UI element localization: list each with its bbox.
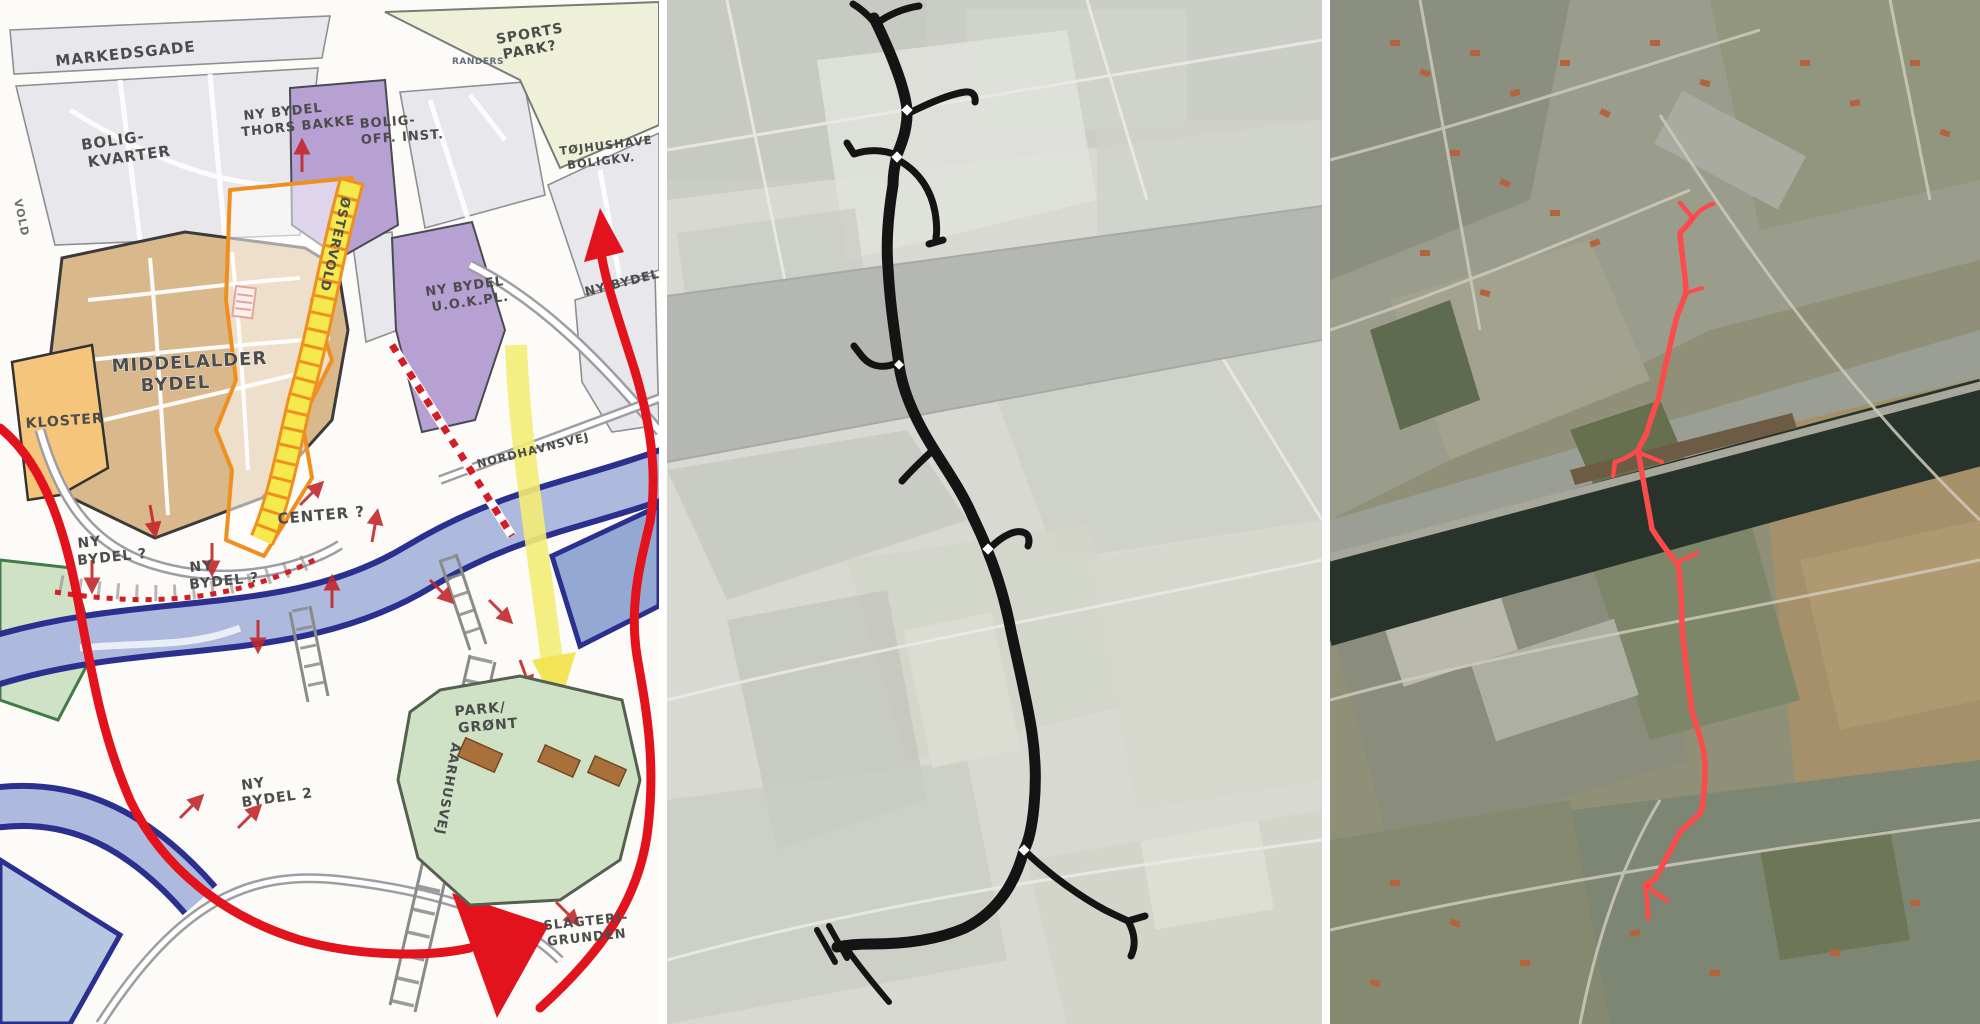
zone-park-gront (398, 676, 640, 905)
color-aerial-route-panel (1330, 0, 1980, 1024)
label-randers: RANDERS (452, 57, 504, 67)
bw-aerial-alignment-panel (667, 0, 1322, 1024)
sketch-map-panel: MARKEDSGADE BOLIG- KVARTER NY BYDEL THOR… (0, 0, 659, 1024)
label-park-gront: PARK/ GRØNT (454, 699, 519, 737)
triptych-of-randers-plan-maps: MARKEDSGADE BOLIG- KVARTER NY BYDEL THOR… (0, 0, 1980, 1024)
